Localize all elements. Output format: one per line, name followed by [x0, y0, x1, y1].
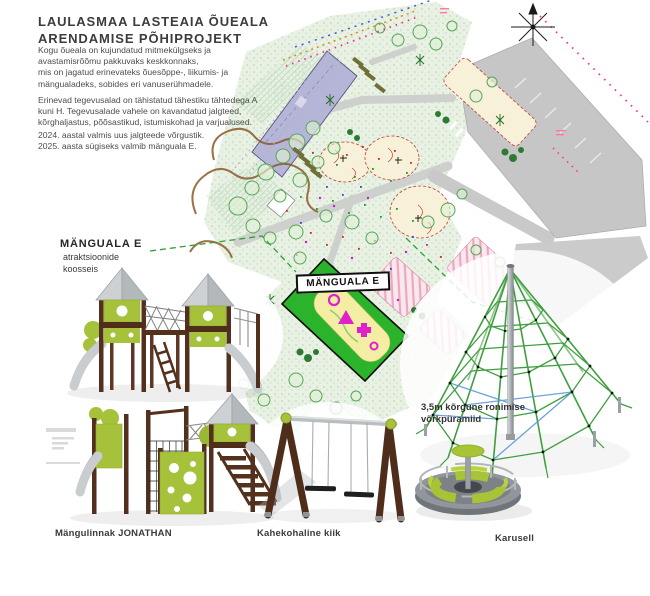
area-label-subtitle: atraktsioonide koosseis: [63, 252, 119, 275]
project-poster: LAULASMAA LASTEAIA ÕUEALA ARENDAMISE PÕH…: [0, 0, 650, 596]
intro-paragraph-2: Erinevad tegevusalad on tähistatud tähes…: [38, 95, 308, 129]
area-label-title: MÄNGUALA E: [60, 238, 142, 250]
poster-title-line1: LAULASMAA LASTEAIA ÕUEALA: [38, 13, 269, 30]
caption-jonathan: Mängulinnak JONATHAN: [55, 528, 172, 539]
north-arrow-icon: [511, 4, 555, 46]
caption-pyramid: 3,5m kõrgune ronimise võrkpüramiid: [421, 402, 525, 426]
zone-badge: MÄNGUALA E: [296, 271, 391, 293]
intro-paragraph-3: 2024. aastal valmis uus jalgteede võrgus…: [38, 130, 308, 152]
caption-carousel: Karusell: [495, 533, 534, 544]
intro-paragraph-1: Kogu õueala on kujundatud mitmekülgseks …: [38, 45, 308, 90]
caption-swing: Kahekohaline kiik: [257, 528, 341, 539]
